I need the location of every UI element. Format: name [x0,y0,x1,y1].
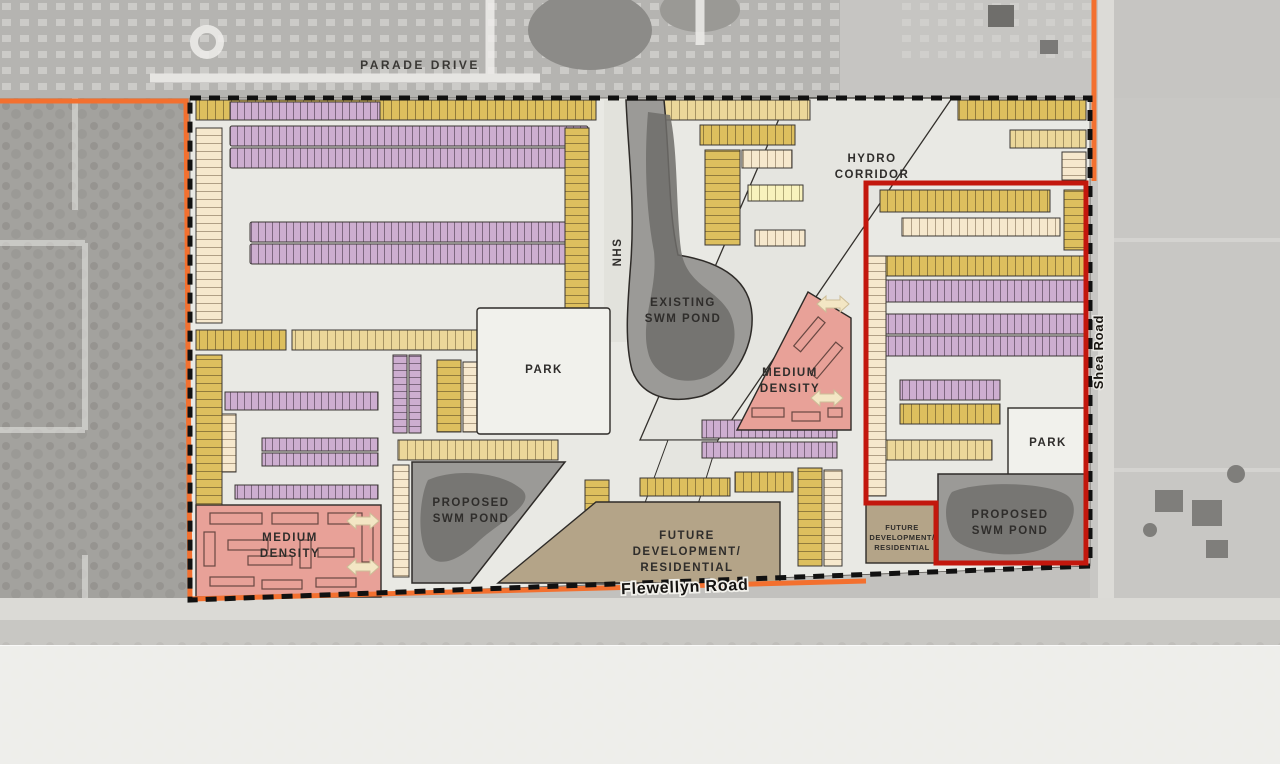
park-west-label: PARK [525,364,563,376]
park-east-label: PARK [1029,437,1067,449]
legend-panel: LEGEND Stittsville South Urban Expansion… [0,645,1280,764]
shea-road-label: Shea Road [1091,315,1106,389]
parade-drive-label: PARADE DRIVE [360,58,480,72]
nhs-label: NHS [612,238,624,267]
built-form-diagram: PARADE DRIVE HYDROCORRIDOR NHS EXISTINGS… [0,0,1280,764]
